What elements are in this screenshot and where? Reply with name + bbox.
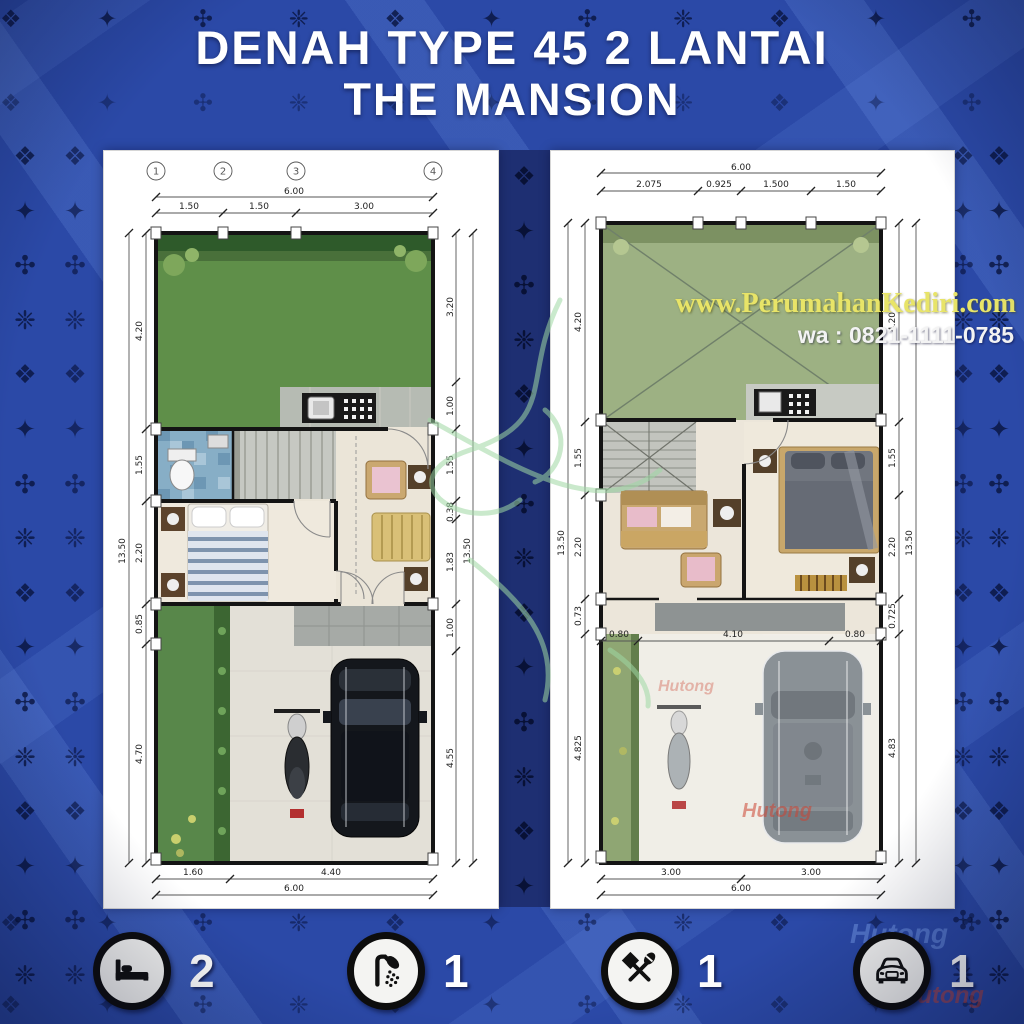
svg-text:6.00: 6.00 bbox=[284, 187, 304, 197]
legend-bedrooms: 2 bbox=[93, 932, 215, 1010]
svg-text:4: 4 bbox=[430, 167, 436, 178]
toilet-tank bbox=[168, 449, 196, 461]
svg-text:1.500: 1.500 bbox=[763, 180, 789, 190]
svg-text:1.50: 1.50 bbox=[249, 202, 269, 212]
bed-icon bbox=[93, 932, 171, 1010]
whatsapp-watermark: wa : 0821-1111-0785 bbox=[798, 322, 1014, 349]
svg-text:1.55: 1.55 bbox=[574, 448, 584, 468]
website-watermark: www.PerumahanKediri.com bbox=[675, 288, 1016, 320]
stairs-2 bbox=[603, 422, 696, 493]
svg-text:4.825: 4.825 bbox=[574, 735, 584, 761]
svg-text:4.20: 4.20 bbox=[574, 312, 584, 332]
page-title: DENAH TYPE 45 2 LANTAI THE MANSION bbox=[0, 22, 1024, 125]
svg-text:13.50: 13.50 bbox=[905, 530, 915, 556]
svg-text:13.50: 13.50 bbox=[118, 538, 128, 564]
floorplan-lantai2-panel: 6.00 2.075 0.925 1.500 1.50 13.50 4.20 1… bbox=[550, 150, 955, 909]
shower-icon bbox=[347, 932, 425, 1010]
sofa bbox=[372, 513, 430, 561]
svg-text:1.50: 1.50 bbox=[836, 180, 856, 190]
carport-below bbox=[603, 634, 879, 861]
svg-text:13.50: 13.50 bbox=[463, 538, 473, 564]
kitchen-counter-2 bbox=[746, 384, 879, 420]
svg-text:4.83: 4.83 bbox=[888, 738, 898, 758]
svg-text:2.20: 2.20 bbox=[574, 537, 584, 557]
svg-text:3.00: 3.00 bbox=[801, 868, 821, 878]
svg-text:2: 2 bbox=[220, 167, 226, 178]
ornament-column-left-inner: ❖ ✦ ✣ ❈ ❖ ✦ ✣ ❈ ❖ ✦ ✣ ❈ ❖ ✦ ✣ ❈ ❖ ✦ ✣ ❈ … bbox=[58, 130, 92, 1010]
svg-text:1.55: 1.55 bbox=[888, 448, 898, 468]
ornament-column-left-outer: ❖ ✦ ✣ ❈ ❖ ✦ ✣ ❈ ❖ ✦ ✣ ❈ ❖ ✦ ✣ ❈ ❖ ✦ ✣ ❈ … bbox=[8, 130, 42, 1010]
porch bbox=[294, 606, 433, 646]
svg-text:4.55: 4.55 bbox=[446, 748, 456, 768]
bathroom-count: 1 bbox=[443, 944, 469, 998]
ornament-column-right-outer: ❖ ✦ ✣ ❈ ❖ ✦ ✣ ❈ ❖ ✦ ✣ ❈ ❖ ✦ ✣ ❈ ❖ ✦ ✣ ❈ … bbox=[982, 130, 1016, 1010]
svg-text:1.55: 1.55 bbox=[446, 455, 456, 475]
kitchen-count: 1 bbox=[697, 944, 723, 998]
bed-single bbox=[188, 504, 268, 601]
svg-text:3.00: 3.00 bbox=[354, 202, 374, 212]
svg-text:6.00: 6.00 bbox=[284, 884, 304, 894]
bathroom bbox=[158, 429, 233, 501]
balcony-slab bbox=[655, 603, 845, 631]
legend-carport: 1 bbox=[853, 932, 975, 1010]
title-line2: THE MANSION bbox=[0, 74, 1024, 126]
svg-text:0.73: 0.73 bbox=[574, 606, 584, 626]
svg-text:2.20: 2.20 bbox=[135, 543, 145, 563]
kitchen-counter bbox=[280, 387, 433, 427]
car-top-view bbox=[323, 659, 427, 837]
stairs bbox=[233, 429, 336, 499]
svg-text:1.00: 1.00 bbox=[446, 396, 456, 416]
floorplan-lantai1-panel: 1 2 3 4 6.00 1.50 1.50 3.00 13.50 4.20 1… bbox=[103, 150, 499, 909]
svg-text:1.00: 1.00 bbox=[446, 618, 456, 638]
legend-bathrooms: 1 bbox=[347, 932, 469, 1010]
svg-text:1: 1 bbox=[153, 167, 159, 178]
bed-double bbox=[779, 447, 879, 553]
svg-text:1.83: 1.83 bbox=[446, 552, 456, 572]
svg-text:3: 3 bbox=[293, 167, 299, 178]
panel-gap: ❖ ✦ ✣ ❈ ❖ ✦ ✣ ❈ ❖ ✦ ✣ ❈ ❖ ✦ ✣ ❈ ❖ ✦ ✣ ❈ … bbox=[497, 150, 550, 907]
car-icon bbox=[853, 932, 931, 1010]
svg-text:2.075: 2.075 bbox=[636, 180, 662, 190]
svg-text:6.00: 6.00 bbox=[731, 163, 751, 173]
svg-text:1.50: 1.50 bbox=[179, 202, 199, 212]
svg-text:0.38: 0.38 bbox=[446, 502, 456, 522]
svg-text:0.85: 0.85 bbox=[135, 614, 145, 634]
svg-text:4.70: 4.70 bbox=[135, 744, 145, 764]
bath-sink bbox=[208, 435, 228, 448]
svg-text:3.20: 3.20 bbox=[446, 297, 456, 317]
floorplan-lantai1: 1 2 3 4 6.00 1.50 1.50 3.00 13.50 4.20 1… bbox=[104, 151, 498, 908]
svg-text:1.60: 1.60 bbox=[183, 868, 203, 878]
svg-text:0.725: 0.725 bbox=[888, 603, 898, 629]
svg-text:3.00: 3.00 bbox=[661, 868, 681, 878]
svg-text:0.925: 0.925 bbox=[706, 180, 732, 190]
bedroom-2 bbox=[744, 422, 879, 599]
svg-text:6.00: 6.00 bbox=[731, 884, 751, 894]
ornament-column-center: ❖ ✦ ✣ ❈ ❖ ✦ ✣ ❈ ❖ ✦ ✣ ❈ ❖ ✦ ✣ ❈ ❖ ✦ ✣ ❈ … bbox=[507, 150, 541, 907]
svg-text:2.20: 2.20 bbox=[888, 537, 898, 557]
bedroom-1 bbox=[158, 501, 336, 604]
svg-text:4.10: 4.10 bbox=[723, 630, 743, 640]
poster: ❖ ✦ ✣ ❈ ❖ ✦ ✣ ❈ ❖ ✦ ✣ ❈ ❖ ✦ ✣ ❈ ❖ ✦ ✣ ❈ … bbox=[0, 0, 1024, 1024]
svg-text:0.80: 0.80 bbox=[609, 630, 629, 640]
svg-text:4.20: 4.20 bbox=[135, 321, 145, 341]
carport-count: 1 bbox=[949, 944, 975, 998]
bedroom-count: 2 bbox=[189, 944, 215, 998]
svg-text:0.80: 0.80 bbox=[845, 630, 865, 640]
legend-row: 2 1 bbox=[0, 932, 1024, 1016]
svg-text:13.50: 13.50 bbox=[557, 530, 567, 556]
garden-side-strip bbox=[158, 606, 230, 861]
dining-icon bbox=[601, 932, 679, 1010]
floorplan-lantai2: 6.00 2.075 0.925 1.500 1.50 13.50 4.20 1… bbox=[551, 151, 954, 908]
title-line1: DENAH TYPE 45 2 LANTAI bbox=[0, 22, 1024, 74]
toilet bbox=[170, 460, 194, 490]
car-top-view-ghost bbox=[755, 651, 871, 843]
svg-text:1.55: 1.55 bbox=[135, 455, 145, 475]
sofa bbox=[621, 491, 707, 549]
svg-text:4.40: 4.40 bbox=[321, 868, 341, 878]
grid-bubbles: 1 2 3 4 bbox=[147, 162, 442, 180]
rug bbox=[795, 575, 847, 591]
legend-kitchen: 1 bbox=[601, 932, 723, 1010]
